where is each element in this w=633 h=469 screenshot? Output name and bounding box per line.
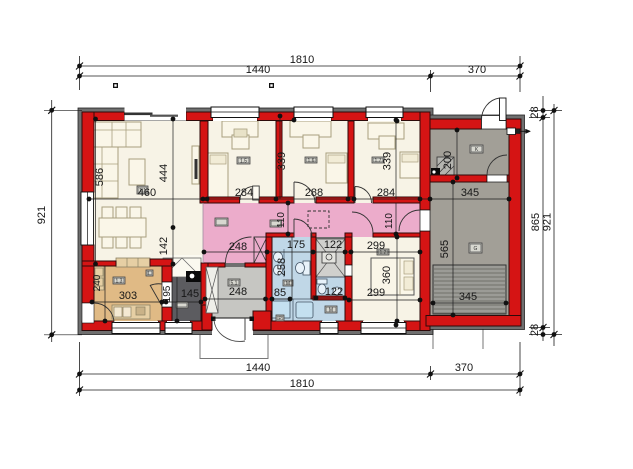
- svg-text:L: L: [148, 271, 151, 277]
- svg-text:299: 299: [367, 287, 385, 299]
- svg-text:370: 370: [455, 362, 473, 374]
- svg-text:370: 370: [468, 64, 486, 76]
- svg-text:M: M: [286, 281, 290, 287]
- svg-text:586: 586: [94, 168, 106, 186]
- svg-text:288: 288: [305, 187, 323, 199]
- svg-text:175: 175: [287, 239, 305, 251]
- svg-text:248: 248: [229, 241, 247, 253]
- svg-text:1.3: 1.3: [116, 279, 123, 285]
- svg-text:921: 921: [36, 206, 48, 224]
- svg-text:1.5: 1.5: [240, 159, 247, 165]
- svg-text:258: 258: [276, 258, 288, 276]
- svg-text:1.6: 1.6: [308, 158, 315, 164]
- svg-text:M: M: [329, 308, 333, 314]
- svg-text:200: 200: [442, 151, 454, 169]
- svg-text:444: 444: [158, 164, 170, 182]
- svg-text:122: 122: [324, 239, 342, 251]
- svg-text:142: 142: [158, 237, 170, 255]
- svg-text:122: 122: [325, 286, 343, 298]
- svg-text:360: 360: [381, 266, 393, 284]
- svg-text:921: 921: [542, 213, 554, 231]
- svg-text:339: 339: [276, 152, 288, 170]
- svg-text:339: 339: [382, 152, 394, 170]
- svg-text:G: G: [474, 246, 478, 252]
- svg-text:303: 303: [119, 290, 137, 302]
- svg-text:145: 145: [181, 288, 199, 300]
- svg-text:28: 28: [529, 324, 541, 336]
- svg-text:240: 240: [92, 274, 103, 291]
- svg-text:284: 284: [377, 187, 395, 199]
- svg-text:110: 110: [384, 213, 395, 229]
- svg-text:565: 565: [439, 240, 451, 258]
- svg-text:28: 28: [529, 106, 541, 118]
- svg-text:460: 460: [138, 187, 156, 199]
- svg-text:110: 110: [276, 212, 287, 228]
- svg-text:299: 299: [367, 240, 385, 252]
- svg-text:1810: 1810: [290, 378, 314, 390]
- svg-text:195: 195: [162, 285, 173, 302]
- svg-text:345: 345: [461, 187, 479, 199]
- svg-text:865: 865: [530, 213, 542, 231]
- svg-text:1440: 1440: [246, 362, 270, 374]
- svg-text:85: 85: [274, 287, 286, 299]
- svg-text:284: 284: [235, 187, 253, 199]
- svg-text:345: 345: [459, 291, 477, 303]
- svg-text:1810: 1810: [290, 54, 314, 66]
- svg-text:248: 248: [229, 286, 247, 298]
- svg-text:1440: 1440: [246, 64, 270, 76]
